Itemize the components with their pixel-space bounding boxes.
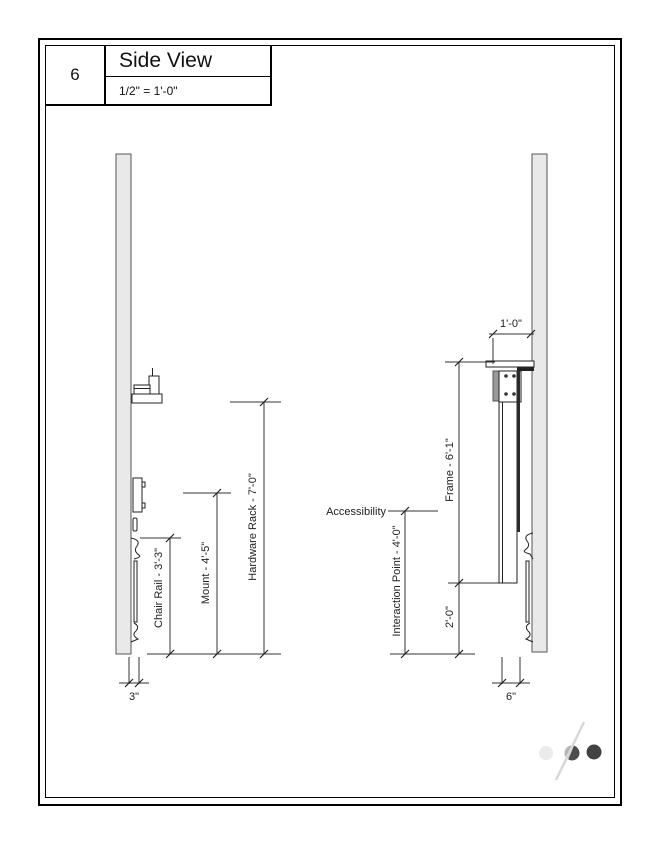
logo-dot-light (539, 746, 553, 760)
device-small-box (133, 518, 137, 531)
bracket-plate (493, 371, 499, 401)
bracket-screw (512, 374, 516, 378)
wall-mount-device (133, 478, 145, 531)
logo-mark (539, 722, 602, 780)
bracket-arm (134, 385, 150, 394)
bracket-screw (512, 392, 516, 396)
dim-label-1ft: 1'-0" (500, 318, 522, 330)
dim-label-2ft: 2'-0" (444, 606, 456, 628)
dim-label-interaction-point: Interaction Point - 4'-0" (391, 525, 403, 636)
molding-bottom (131, 623, 138, 642)
dim-label-6in: 6" (506, 691, 516, 703)
left-wall (116, 154, 131, 654)
accessibility-label: Accessibility (326, 506, 386, 518)
drawing-sheet: { "title_block": { "view_number": "6", "… (0, 0, 663, 843)
dim-label-hardware-rack: Hardware Rack - 7'-0" (247, 473, 259, 581)
rail-board (526, 561, 529, 622)
drawing-canvas: Chair Rail - 3'-3" Mount - 4'-5" Hardwar… (0, 0, 663, 843)
right-view: 1'-0" Frame - 6'-1" 2'-0" Interaction Po… (326, 154, 547, 703)
left-view: Chair Rail - 3'-3" Mount - 4'-5" Hardwar… (116, 154, 281, 703)
dim-6in-lines (492, 657, 530, 684)
frame-back-rail (517, 371, 521, 532)
dim-label-frame: Frame - 6'-1" (444, 438, 456, 502)
logo-slash (556, 722, 584, 780)
device-body (133, 478, 142, 512)
device-nub-top (142, 482, 145, 487)
dim-3in-lines (119, 657, 149, 684)
right-wall (532, 154, 547, 652)
shelf-cleat (517, 367, 534, 371)
bracket-screw (504, 374, 508, 378)
bracket-base (132, 394, 162, 403)
dim-1ft-lines (489, 334, 534, 364)
logo-dot-dark (587, 745, 602, 760)
frame-post (499, 402, 517, 583)
hardware-rack-bracket (132, 368, 162, 403)
frame-assembly (486, 361, 534, 583)
chair-rail-molding-left (131, 538, 140, 642)
dim-label-mount: Mount - 4'-5" (200, 542, 212, 604)
device-nub-bottom (142, 503, 145, 508)
rail-board (134, 561, 137, 622)
dim-label-3in: 3" (129, 691, 139, 703)
bracket-screw (504, 392, 508, 396)
molding-top (131, 538, 140, 559)
dim-label-chair-rail: Chair Rail - 3'-3" (153, 548, 165, 628)
